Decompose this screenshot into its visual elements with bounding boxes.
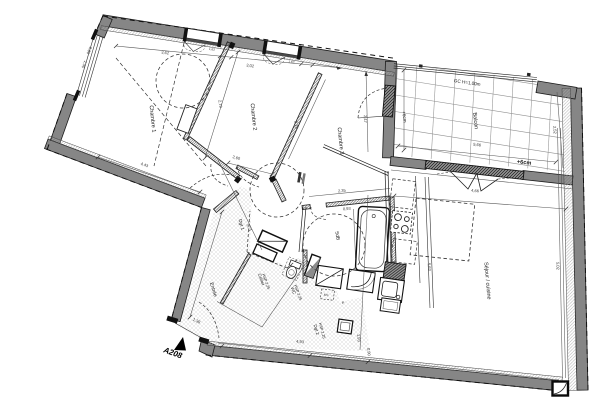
svg-text:2,79: 2,79 — [294, 121, 300, 130]
svg-text:2,35: 2,35 — [338, 188, 347, 194]
svg-text:1,93: 1,93 — [356, 334, 362, 343]
svg-text:2,79: 2,79 — [218, 100, 224, 109]
svg-text:0,93: 0,93 — [343, 206, 352, 212]
svg-text:5,63: 5,63 — [427, 263, 433, 272]
svg-text:2,52: 2,52 — [552, 126, 558, 135]
svg-text:4,93: 4,93 — [296, 339, 305, 345]
svg-text:2,47: 2,47 — [363, 115, 368, 124]
svg-text:5,02: 5,02 — [555, 262, 560, 271]
svg-text:0,90: 0,90 — [366, 348, 372, 357]
svg-text:MS: MS — [324, 293, 329, 298]
svg-text:4,66: 4,66 — [471, 188, 480, 194]
